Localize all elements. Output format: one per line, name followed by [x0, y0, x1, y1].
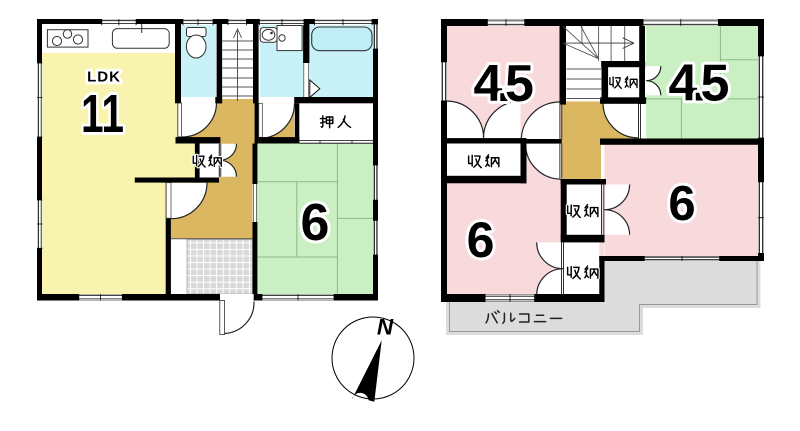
svg-text:6: 6	[300, 194, 329, 252]
svg-text:6: 6	[467, 212, 495, 268]
svg-text:4.5: 4.5	[669, 54, 730, 112]
svg-text:4.5: 4.5	[474, 55, 534, 113]
svg-text:N: N	[377, 315, 394, 340]
svg-text:6: 6	[668, 177, 695, 231]
svg-text:11: 11	[81, 84, 124, 144]
